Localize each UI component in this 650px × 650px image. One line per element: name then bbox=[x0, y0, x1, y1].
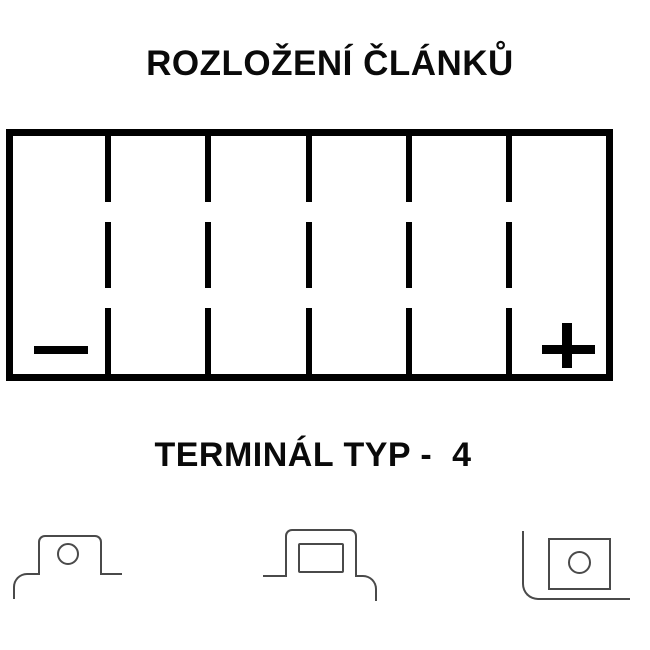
battery-cell-layout-box bbox=[6, 129, 613, 381]
round-hole-icon bbox=[57, 543, 79, 565]
battery-edge-line bbox=[13, 573, 122, 599]
negative-terminal-icon bbox=[34, 346, 88, 354]
battery-edge-line bbox=[263, 575, 377, 601]
round-hole-icon bbox=[568, 551, 591, 574]
terminal-type-heading: TERMINÁL TYP - 4 bbox=[0, 436, 626, 475]
cell-divider bbox=[506, 136, 512, 374]
cell-divider bbox=[406, 136, 412, 374]
page-title: ROZLOŽENÍ ČLÁNKŮ bbox=[10, 44, 650, 84]
square-recess-icon bbox=[298, 543, 344, 573]
cell-divider bbox=[105, 136, 111, 374]
cell-divider bbox=[205, 136, 211, 374]
positive-terminal-icon bbox=[562, 323, 572, 368]
cell-divider bbox=[306, 136, 312, 374]
